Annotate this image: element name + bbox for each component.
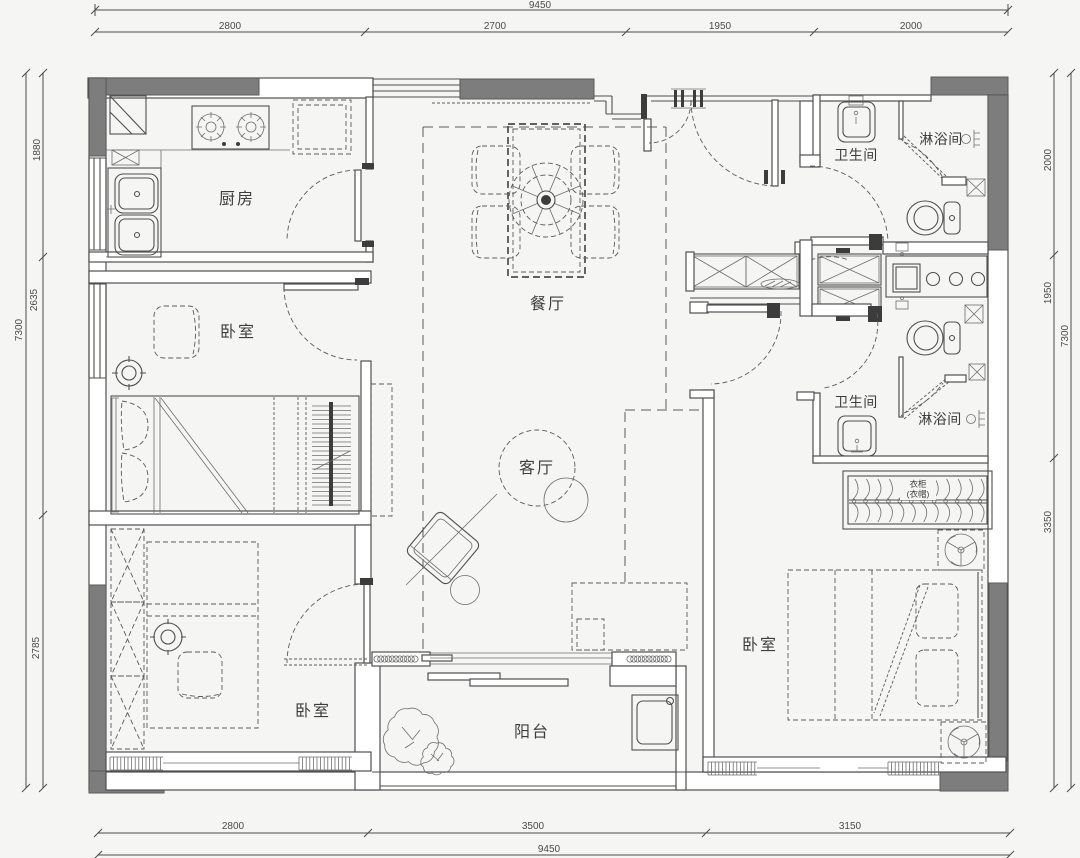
svg-text:1950: 1950 [1043,281,1054,304]
svg-text:7300: 7300 [1060,324,1071,347]
svg-text:2800: 2800 [219,21,242,32]
svg-text:7300: 7300 [14,318,25,341]
svg-text:阳台: 阳台 [514,723,550,741]
svg-text:衣柜: 衣柜 [909,479,927,489]
svg-text:(衣帽): (衣帽) [907,489,930,499]
svg-text:3150: 3150 [839,821,862,832]
svg-text:卧室: 卧室 [742,636,778,654]
svg-text:2000: 2000 [1043,148,1054,171]
svg-text:1880: 1880 [32,138,43,161]
svg-text:3500: 3500 [522,821,545,832]
svg-text:客厅: 客厅 [519,459,555,477]
svg-text:3350: 3350 [1043,510,1054,533]
svg-text:9450: 9450 [529,0,552,11]
svg-text:2800: 2800 [222,821,245,832]
svg-text:卧室: 卧室 [295,702,331,720]
svg-text:2635: 2635 [29,288,40,311]
svg-text:9450: 9450 [538,844,561,855]
svg-text:1950: 1950 [709,21,732,32]
svg-text:2785: 2785 [31,636,42,659]
svg-text:厨房: 厨房 [219,190,255,208]
svg-text:淋浴间: 淋浴间 [918,411,962,427]
svg-text:2000: 2000 [900,21,923,32]
svg-text:卫生间: 卫生间 [834,147,878,163]
svg-text:卧室: 卧室 [220,323,256,341]
svg-text:2700: 2700 [484,21,507,32]
svg-text:餐厅: 餐厅 [530,295,566,313]
svg-text:卫生间: 卫生间 [834,394,878,410]
svg-text:淋浴间: 淋浴间 [919,131,963,147]
